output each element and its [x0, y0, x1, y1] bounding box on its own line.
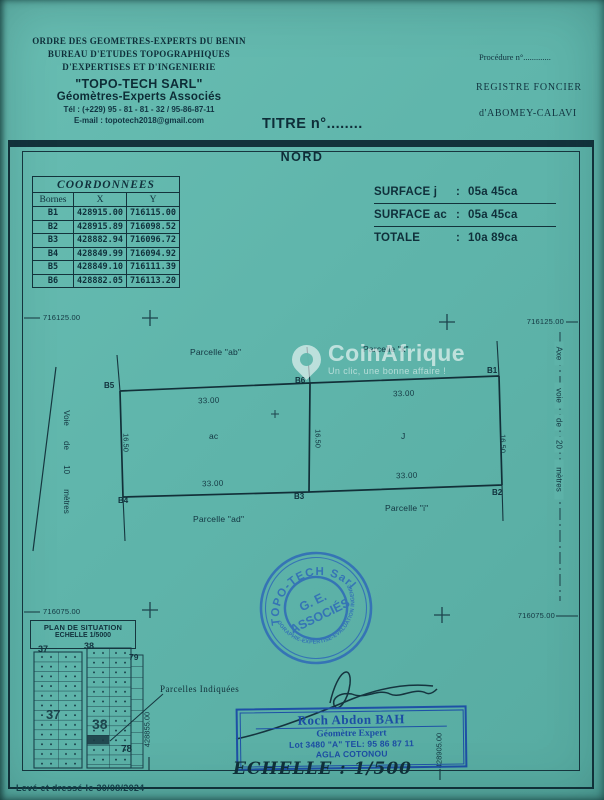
y-coordinate-label-top-right: 716125.00	[506, 317, 564, 326]
scanned-survey-document: ORDRE DES GEOMETRES-EXPERTS DU BENIN BUR…	[0, 0, 604, 800]
block-number: 38	[84, 641, 94, 651]
parcel-label-i: Parcelle "i"	[385, 503, 428, 513]
block-number: 37	[38, 644, 48, 654]
east-axis-word: mètres	[555, 460, 564, 500]
situation-title: PLAN DE SITUATION	[31, 623, 135, 632]
table-row: B4428849.99716094.92	[33, 247, 180, 261]
procedure-number: Procédure n°.............	[479, 52, 551, 62]
y-coordinate-label-bottom-right: 716075.00	[500, 611, 555, 620]
borne-label-b5: B5	[104, 381, 114, 390]
company-stamp: TOPO-TECH Sarl TOPOGRAPHIE-EXPERTISE-EVA…	[254, 546, 378, 670]
coordinates-table-title: COORDONNEES	[33, 177, 180, 193]
col-bornes: Bornes	[33, 193, 74, 207]
surface-value: 05a 45ca	[468, 209, 518, 221]
table-row: B1428915.00716115.00	[33, 207, 180, 221]
register-location: d'ABOMEY-CALAVI	[479, 108, 577, 119]
east-axis-word: de	[555, 415, 564, 431]
indicated-parcels-note: Parcelles Indiquées	[160, 684, 239, 694]
letterhead: ORDRE DES GEOMETRES-EXPERTS DU BENIN BUR…	[18, 35, 260, 125]
dimension-top-left: 33.00	[198, 396, 220, 406]
x-coordinate-label-left: 428855.00	[143, 706, 152, 754]
dimension-bottom-right: 33.00	[396, 471, 418, 481]
parcel-label-ab: Parcelle "ab"	[190, 347, 241, 357]
dimension-side-middle: 16.50	[314, 426, 323, 452]
table-row: B3428882.94716096.72	[33, 234, 180, 248]
surface-summary: SURFACE j : 05a 45ca SURFACE ac : 05a 45…	[374, 181, 556, 249]
dimension-top-right: 33.00	[393, 389, 415, 399]
block-number: 78	[121, 744, 132, 755]
email-line: E-mail : topotech2018@gmail.com	[18, 116, 260, 125]
main-scale-label: ECHELLE : 1/500	[233, 759, 412, 779]
y-coordinate-label-bottom-left: 716075.00	[43, 607, 80, 616]
north-label: NORD	[276, 150, 328, 164]
west-road-label: Voie de 10 mètres	[57, 396, 71, 528]
dimension-bottom-left: 33.00	[202, 479, 224, 489]
company-name: "TOPO-TECH SARL"	[18, 77, 260, 91]
borne-label-b2: B2	[492, 488, 502, 497]
parcel-cell-ac: ac	[209, 431, 218, 441]
phone-line: Tél : (+229) 95 - 81 - 81 - 32 / 95-86-8…	[18, 105, 260, 114]
table-row: B6428882.05716113.20	[33, 274, 180, 288]
land-register: REGISTRE FONCIER	[476, 82, 582, 93]
dimension-side-left: 16.50	[122, 430, 131, 456]
surface-value: 05a 45ca	[468, 186, 518, 198]
y-coordinate-label-top-left: 716125.00	[43, 313, 80, 322]
borne-label-b1: B1	[487, 366, 497, 375]
east-axis-word: Axe	[555, 342, 564, 366]
col-x: X	[74, 193, 127, 207]
situation-scale: ECHELLE 1/5000	[31, 632, 135, 639]
parcel-label-ad: Parcelle "ad"	[193, 514, 244, 524]
surface-value: 10a 89ca	[468, 232, 518, 244]
block-number: 37	[46, 707, 60, 722]
borne-label-b4: B4	[118, 496, 128, 505]
block-number: 38	[92, 716, 108, 732]
parcel-label-k: Parcelle "k"	[363, 344, 409, 354]
table-row: B5428849.10716111.39	[33, 261, 180, 275]
surface-row: SURFACE j : 05a 45ca	[374, 181, 556, 204]
borne-label-b3: B3	[294, 492, 304, 501]
org-line-2: BUREAU D'ETUDES TOPOGRAPHIQUES	[18, 48, 260, 61]
coordinates-table: COORDONNEES Bornes X Y B1428915.00716115…	[32, 176, 180, 288]
east-axis-word: voie	[555, 383, 564, 409]
org-line-3: D'EXPERTISES ET D'INGENIERIE	[18, 61, 260, 74]
org-line-1: ORDRE DES GEOMETRES-EXPERTS DU BENIN	[18, 35, 260, 48]
surface-row: SURFACE ac : 05a 45ca	[374, 204, 556, 227]
col-y: Y	[127, 193, 180, 207]
title-number: TITRE n°........	[262, 116, 363, 132]
block-number: 79	[129, 652, 138, 662]
east-axis-word: 20	[555, 437, 564, 453]
table-row: B2428915.89716098.52	[33, 220, 180, 234]
parcel-cell-j: J	[401, 431, 405, 441]
borne-label-b6: B6	[295, 376, 305, 385]
surface-total-row: TOTALE : 10a 89ca	[374, 227, 556, 249]
company-subtitle: Géomètres-Experts Associés	[18, 91, 260, 103]
dimension-side-right: 16.50	[499, 431, 508, 457]
survey-date-note: Levé et dressé le 30/08/2024	[16, 783, 145, 793]
